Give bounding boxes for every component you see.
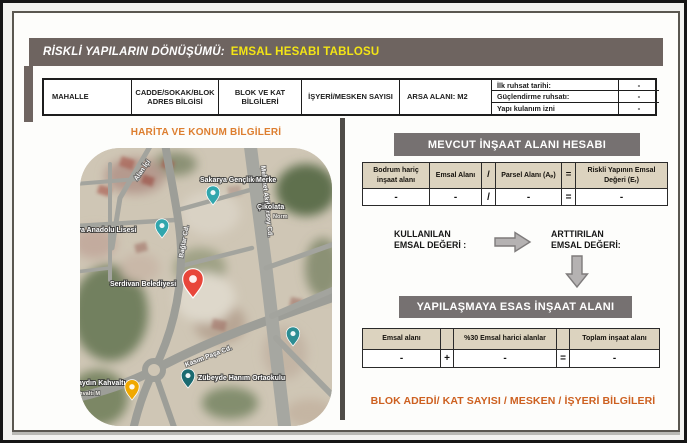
value-equals-operator: = (562, 189, 576, 205)
table-row: İlk ruhsat tarihi: - (492, 80, 659, 91)
value-riskli-emsal-degeri: - (576, 189, 667, 205)
value-emsal-alani-2: - (363, 350, 441, 367)
col-blok-kat: BLOK VE KAT BİLGİLERİ (219, 80, 302, 114)
value-emsal-harici: - (454, 350, 557, 367)
yapilasma-esas-header: YAPILAŞMAYA ESAS İNŞAAT ALANI (399, 296, 632, 318)
col-arsa-alani: ARSA ALANI: M2 (400, 80, 492, 114)
kullanilan-emsal-label: KULLANILAN EMSAL DEĞERİ : (394, 229, 466, 250)
building-info-table: MAHALLE CADDE/SOKAK/BLOK ADRES BİLGİSİ B… (42, 78, 657, 116)
kullanilan-line1: KULLANILAN (394, 229, 466, 240)
header-parsel-alani: Parsel Alanı (Aₚ) (496, 163, 562, 189)
title-band-tail (24, 66, 33, 122)
down-arrow-icon (565, 255, 589, 289)
arttirilan-line2: EMSAL DEĞERİ: (551, 240, 621, 251)
table-row: Güçlendirme ruhsatı: - (492, 91, 659, 102)
page-title-prefix: RİSKLİ YAPILARIN DÖNÜŞÜMÜ: (43, 46, 225, 58)
col-mahalle: MAHALLE (44, 80, 132, 114)
header-equals-operator: = (562, 163, 576, 189)
col-isyeri-mesken: İŞYERİ/MESKEN SAYISI (302, 80, 400, 114)
page-title: RİSKLİ YAPILARIN DÖNÜŞÜMÜ: EMSAL HESABI … (29, 38, 663, 66)
poi-label-serdivan-belediyesi: Serdivan Belediyesi (110, 281, 176, 288)
value-divide-operator: / (482, 189, 496, 205)
header-bodrum-haric: Bodrum hariç inşaat alanı (363, 163, 430, 189)
permit-value-ilk-ruhsat: - (619, 80, 659, 90)
header-emsal-alani: Emsal Alanı (430, 163, 482, 189)
poi-label-kahvalti-sub: Kahvaltı M (80, 391, 100, 397)
location-map-image: Alan İçi Bağlar Cd. Mehmet Akif Ersoy Cd… (80, 148, 332, 426)
blok-adedi-footer-note: BLOK ADEDİ/ KAT SAYISI / MESKEN / İŞYERİ… (350, 395, 676, 407)
arttirilan-line1: ARTTIRILAN (551, 229, 621, 240)
header-equals-operator-2 (557, 329, 570, 350)
arttirilan-emsal-label: ARTTIRILAN EMSAL DEĞERİ: (551, 229, 621, 250)
mevcut-insaat-header: MEVCUT İNŞAAT ALANI HESABI (394, 133, 640, 156)
header-emsal-harici: %30 Emsal harici alanlar (454, 329, 557, 350)
permit-label-ilk-ruhsat: İlk ruhsat tarihi: (492, 80, 619, 90)
kullanilan-line2: EMSAL DEĞERİ : (394, 240, 466, 251)
value-toplam-insaat: - (570, 350, 659, 367)
header-emsal-alani-2: Emsal alanı (363, 329, 441, 350)
permit-value-guclendirme: - (619, 91, 659, 101)
poi-label-gunaydin-kahvalti: Günaydın Kahvaltı (80, 380, 126, 387)
header-divide-operator: / (482, 163, 496, 189)
satellite-map: Alan İçi Bağlar Cd. Mehmet Akif Ersoy Cd… (80, 148, 332, 426)
poi-label-zubeyde-ortaokulu: Zübeyde Hanım Ortaokulu (198, 375, 285, 382)
poi-label-genclik-merkezi: Sakarya Gençlik Merke (200, 177, 276, 184)
poi-label-anadolu-lisesi: Sakarya Anadolu Lisesi (80, 227, 136, 234)
header-plus-operator (441, 329, 454, 350)
header-toplam-insaat: Toplam inşaat alanı (570, 329, 659, 350)
right-arrow-icon (494, 231, 532, 253)
yapilasma-esas-table: Emsal alanı %30 Emsal harici alanlar Top… (362, 328, 660, 368)
poi-label-cikolata-sub: Norm (273, 214, 288, 220)
table-row: Yapı kulanım izni - (492, 103, 659, 114)
value-equals-operator-2: = (557, 350, 570, 367)
page-title-highlight: EMSAL HESABI TABLOSU (231, 46, 380, 58)
permit-label-guclendirme: Güçlendirme ruhsatı: (492, 91, 619, 101)
map-section-title: HARİTA VE KONUM BİLGİLERİ (80, 127, 332, 138)
value-emsal-alani: - (430, 189, 482, 205)
header-riskli-emsal-degeri: Riskli Yapının Emsal Değeri (Eᵣ) (576, 163, 667, 189)
section-divider (340, 118, 345, 420)
permits-block: İlk ruhsat tarihi: - Güçlendirme ruhsatı… (492, 80, 659, 114)
mevcut-insaat-table: Bodrum hariç inşaat alanı Emsal Alanı / … (362, 162, 668, 206)
poi-label-cikolata: Çikolata (257, 204, 284, 211)
col-adres: CADDE/SOKAK/BLOK ADRES BİLGİSİ (132, 80, 219, 114)
permit-value-kullanim-izni: - (619, 103, 659, 114)
permit-label-kullanim-izni: Yapı kulanım izni (492, 103, 619, 114)
value-parsel-alani: - (496, 189, 562, 205)
value-bodrum-haric: - (363, 189, 430, 205)
value-plus-operator: + (441, 350, 454, 367)
